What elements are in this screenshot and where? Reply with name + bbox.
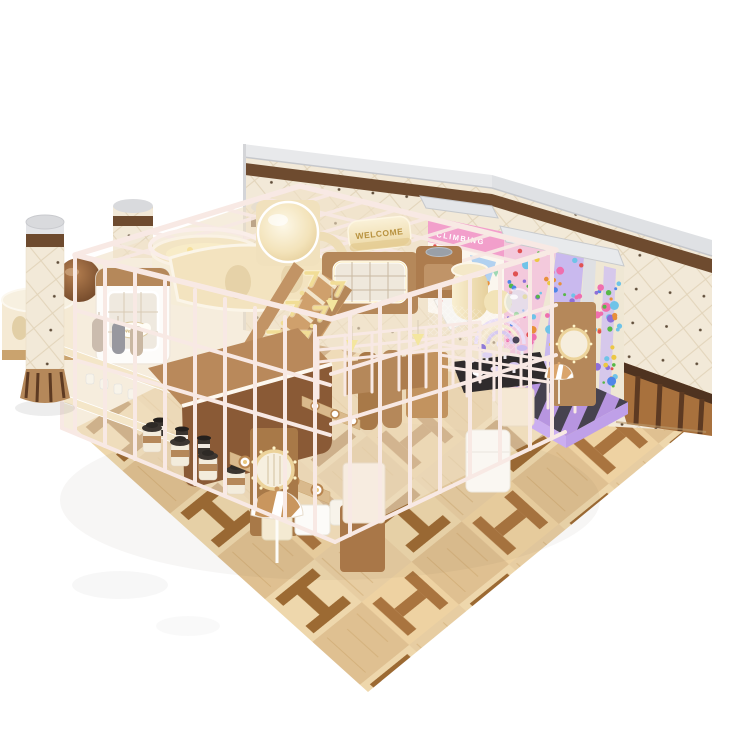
bubble-dome <box>256 200 320 266</box>
climbing-hold <box>579 263 583 267</box>
climbing-hold <box>544 277 549 282</box>
climbing-hold <box>508 280 512 284</box>
playground-render: CLIMBING <box>0 0 750 750</box>
climbing-hold <box>612 313 617 318</box>
clear-bubble-end <box>505 289 531 315</box>
bubble-highlight <box>510 295 518 300</box>
climbing-hold <box>598 330 602 334</box>
climbing-hold <box>603 305 607 309</box>
climbing-hold <box>545 313 550 318</box>
climbing-hold <box>610 345 614 349</box>
climbing-hold <box>603 363 608 368</box>
cube-top-plate <box>426 248 452 257</box>
column1-brown-band <box>26 234 64 247</box>
climbing-hold <box>612 363 616 367</box>
climbing-hold <box>617 281 622 286</box>
climbing-hold <box>595 291 599 295</box>
floor-smudge-shadow-2 <box>156 616 220 636</box>
scene-canvas: CLIMBING <box>0 0 750 750</box>
cake-window-1 <box>12 316 28 340</box>
climbing-hold <box>606 290 611 295</box>
climbing-hold <box>607 326 612 331</box>
climbing-hold <box>614 287 617 290</box>
dome-highlight <box>268 214 288 226</box>
climbing-hold <box>556 267 564 275</box>
climbing-hold <box>611 355 616 360</box>
climbing-hold <box>536 295 540 299</box>
climbing-hold <box>518 249 523 254</box>
climbing-hold <box>611 367 614 370</box>
climbing-hold <box>523 280 526 283</box>
climbing-hold <box>558 282 561 285</box>
column1-cap-top <box>26 215 64 229</box>
floor-smudge-shadow <box>72 571 168 599</box>
climbing-hold <box>616 328 620 332</box>
climbing-hold <box>513 271 518 276</box>
climbing-hold <box>539 292 542 295</box>
climbing-hold <box>604 356 609 361</box>
climbing-hold <box>572 258 577 263</box>
welcome-sign-block: WELCOME <box>347 216 412 252</box>
column1-shaft <box>26 247 64 369</box>
climbing-hold <box>602 381 605 384</box>
column2-silver-cap <box>113 199 153 213</box>
column2-brown-band <box>113 216 153 226</box>
climbing-hold <box>610 297 613 300</box>
dome-glass <box>258 202 318 262</box>
climbing-hold <box>597 284 604 291</box>
climbing-hold <box>563 293 566 296</box>
climbing-hold <box>610 301 619 310</box>
climbing-hold <box>607 377 616 386</box>
climbing-hold <box>577 294 582 299</box>
